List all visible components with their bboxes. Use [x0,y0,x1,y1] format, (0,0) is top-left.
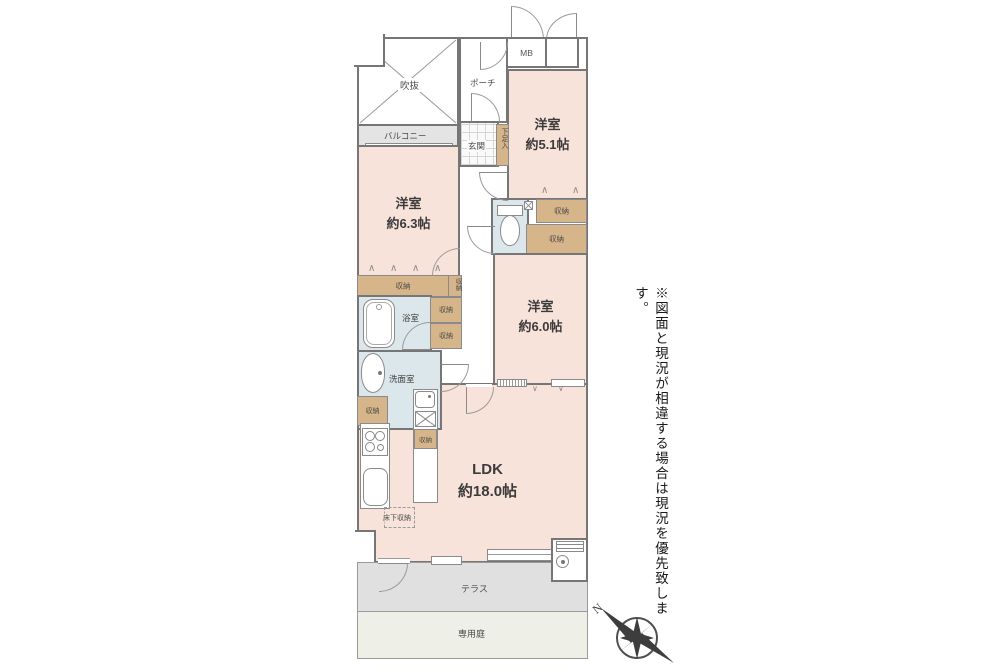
ldk-notch [355,530,376,564]
bedroom-5-1-label: 洋室 約5.1帖 [507,115,588,155]
bedroom-6-3-size: 約6.3帖 [386,216,430,231]
wash-basin-icon [361,353,385,393]
storage-1: 収納 [536,199,587,223]
closet-door-mark: ∧ [572,186,579,196]
ldk-name: LDK [472,461,503,478]
storage-8: 収納 [414,429,437,449]
shoe-box-label: 下足入 [499,128,509,149]
island-sink-icon [415,391,435,408]
outdoor-faucet-icon [556,555,569,568]
floorplan-canvas: 吹抜 ポーチ MB 洋室 約5.1帖 玄関 下足入 バルコニー 洋室 約6.3帖… [0,0,1008,672]
entrance-label: 玄関 [467,140,486,152]
storage-6: 収納 [430,323,462,349]
entry-double-door-right-icon [546,13,577,40]
bathtub-icon [363,299,395,348]
partition-window-icon [551,379,585,387]
atrium-label: 吹抜 [398,78,421,92]
bathroom-label: 浴室 [402,312,419,324]
louver-vent-icon [556,541,584,552]
compass-icon: N [590,597,682,672]
closet-door-mark: ∧ [412,264,419,274]
ldk-size: 約18.0帖 [458,483,517,500]
private-garden-label: 専用庭 [458,627,485,640]
toilet-hand-basin-icon [524,201,533,210]
meter-box-label: MB [508,48,545,58]
storage-7-label: 収納 [358,406,387,416]
balcony-label: バルコニー [384,130,426,142]
pipe-space-box [545,37,579,68]
bedroom-6-3-label: 洋室 約6.3帖 [357,194,460,234]
compass-north-text: N [590,600,605,617]
meter-box: MB [506,37,547,68]
storage-8-label: 収納 [415,434,436,444]
bedroom-6-0-size: 約6.0帖 [518,319,562,334]
storage-5-label: 収納 [431,305,461,315]
kitchen-sink-icon [363,468,388,506]
washroom-label: 洗面室 [389,373,415,385]
storage-1-label: 収納 [537,206,586,217]
storage-2: 収納 [526,224,587,254]
stove-icon [362,428,388,456]
storage-3: 収納 [357,275,449,297]
entry-double-door-left-icon [511,6,544,40]
underfloor-storage-label: 床下収納 [383,513,411,523]
storage-3-label: 収納 [358,281,448,292]
terrace-label: テラス [461,582,488,595]
washer-pan-icon [415,411,436,427]
ldk-label: LDK 約18.0帖 [430,459,545,503]
bedroom-5-1-name: 洋室 [534,117,560,132]
closet-door-mark: ∧ [368,264,375,274]
partition-accordion-icon [497,379,527,387]
storage-4: 収納 [448,275,462,297]
storage-2-label: 収納 [527,234,586,245]
bedroom-6-3-name: 洋室 [395,196,421,211]
ldk-sliding-door-icon [487,549,555,561]
closet-door-mark: ∧ [541,186,548,196]
partition-mark: ∨ [532,385,538,393]
storage-5: 収納 [430,297,462,323]
storage-7: 収納 [357,396,388,426]
disclaimer-note: ※図面と現況が相違する場合は現況を優先致します。 [630,286,670,616]
storage-4-label: 収納 [452,278,462,291]
closet-door-mark: ∧ [390,264,397,274]
bedroom-5-1-size: 約5.1帖 [525,137,569,152]
atrium-notch [354,34,385,67]
shoe-box: 下足入 [496,124,509,166]
ldk-window-icon [431,556,462,565]
bedroom-6-0-label: 洋室 約6.0帖 [493,297,588,337]
porch-label: ポーチ [470,77,496,89]
toilet-bowl-icon [500,215,520,246]
partition-mark: ∨ [558,385,564,393]
storage-6-label: 収納 [431,331,461,341]
bedroom-6-0-name: 洋室 [527,299,553,314]
